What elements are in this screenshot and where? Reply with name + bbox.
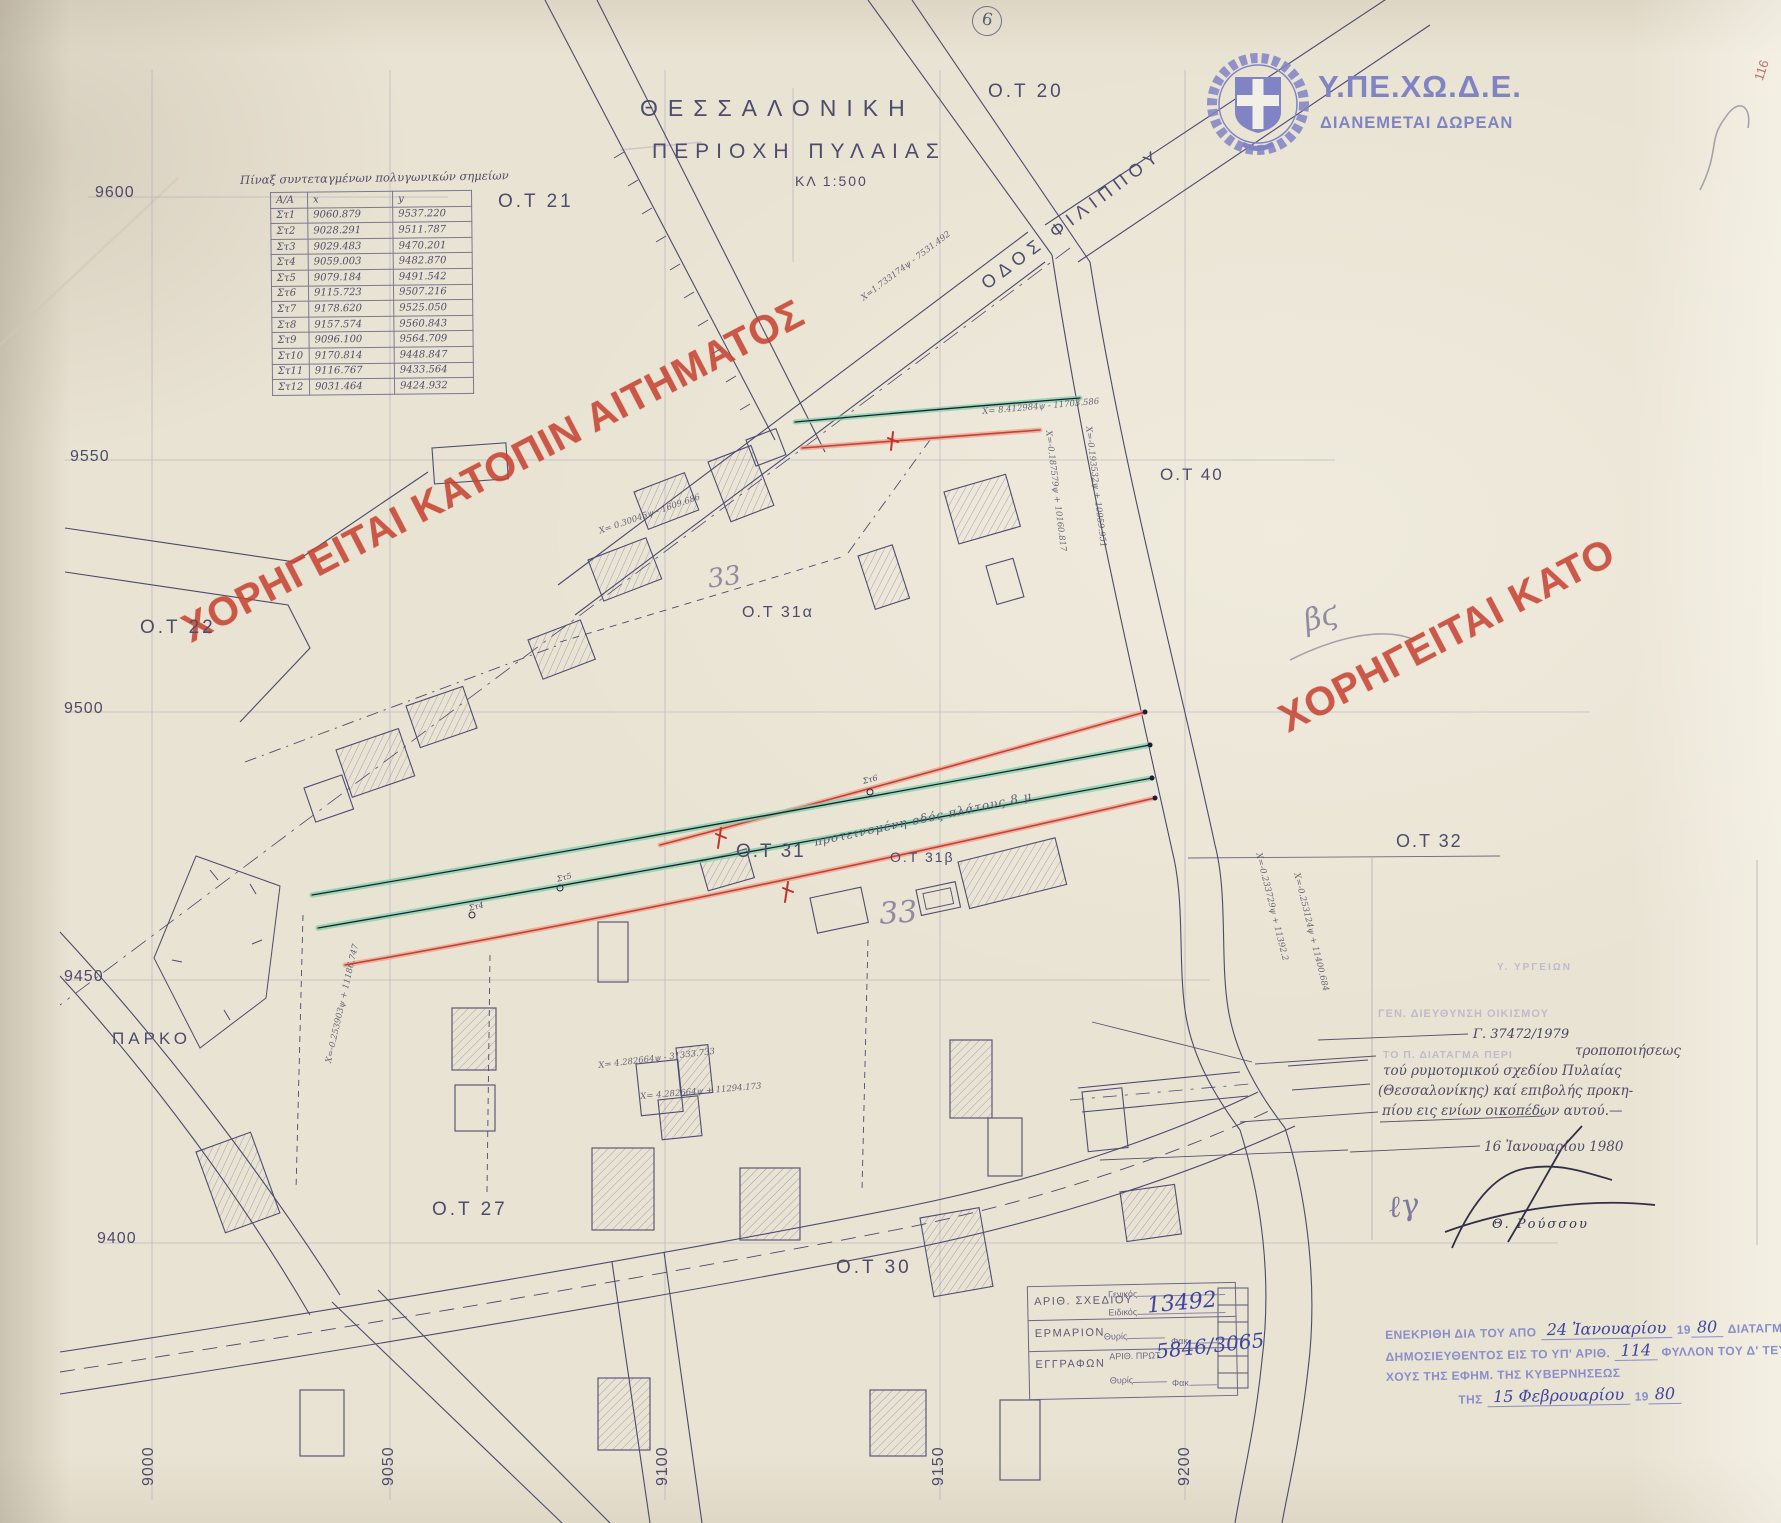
block-label-ot31b: Ο.Τ 31β (890, 850, 955, 865)
grid-label-9200: 9200 (1176, 1446, 1194, 1486)
grid-label-9150: 9150 (930, 1446, 948, 1486)
grid-label-9000: 9000 (140, 1446, 158, 1486)
map-title-area: ΠΕΡΙΟΧΗ ΠΥΛΑΙΑΣ (652, 140, 946, 163)
block-label-ot22: Ο.Τ 22 (140, 618, 216, 639)
grid-label-9100: 9100 (654, 1446, 672, 1486)
pencil-mark-signature-area: ℓγ (1386, 1188, 1421, 1225)
map-linework (0, 0, 1781, 1523)
agency-distribution: ΔΙΑΝΕΜΕΤΑΙ ΔΩΡΕΑΝ (1320, 114, 1513, 132)
reference-number: Γ. 37472/1979 (1473, 1028, 1569, 1042)
approval-stamp: ΕΝΕΚΡΙΘΗ ΔΙΑ ΤΟΥ ΑΠΟ 24 Ἰανουαρίου 1980 … (1385, 1316, 1781, 1411)
map-title-city: ΘΕΣΣΑΛΟΝΙΚΗ (640, 96, 915, 121)
grid-label-9500: 9500 (64, 700, 104, 718)
documents-label: ΕΓΓΡΑΦΩΝ (1035, 1358, 1105, 1371)
grid-label-9400: 9400 (97, 1230, 137, 1248)
documents-folder-field: Φακ. (1172, 1375, 1218, 1388)
documents-slot-field: Θυρίς (1110, 1372, 1168, 1385)
col-header-y: y (392, 190, 471, 206)
block-label-ot40: Ο.Τ 40 (1160, 466, 1224, 485)
faint-stamp-line: ΓΕΝ. ΔΙΕΥΘΥΝΣΗ ΟΙΚΙΣΜΟΥ (1378, 1008, 1549, 1020)
protocol-number-label: ΑΡΙΘ. ΠΡΩΤ. (1109, 1350, 1162, 1361)
col-header-x: x (308, 191, 393, 207)
grid-label-9600: 9600 (95, 184, 135, 202)
pencil-mark-33a: 33 (706, 561, 743, 594)
park-boundary (154, 856, 280, 1048)
block-label-ot32: Ο.Τ 32 (1396, 832, 1463, 852)
grid-label-9050: 9050 (380, 1446, 398, 1486)
map-scale: ΚΛ 1:500 (795, 174, 868, 189)
coordinate-table: Α/Α x y Στ19060.8799537.220 Στ29028.2919… (270, 190, 474, 396)
decree-note-line: τροποποιήσεως (1575, 1044, 1681, 1059)
decree-note-line: (Θεσσαλονίκης) καί επιβολής προκη- (1378, 1084, 1633, 1099)
coat-of-arms-icon (1212, 58, 1304, 150)
block-label-ot20: Ο.Τ 20 (988, 82, 1064, 103)
scanned-map-page: ΘΕΣΣΑΛΟΝΙΚΗ ΠΕΡΙΟΧΗ ΠΥΛΑΙΑΣ ΚΛ 1:500 Υ.Π… (0, 0, 1781, 1523)
block-label-ot21: Ο.Τ 21 (498, 192, 574, 213)
archive-stamp-box: ΑΡΙΘ. ΣΧΕΔΙΟΥ Γενικός Ειδικός 13492 ΕΡΜΑ… (1027, 1282, 1238, 1400)
park-label: ΠΑΡΚΟ (112, 1030, 191, 1049)
block-label-ot31a: Ο.Τ 31α (742, 604, 814, 622)
agency-name: Υ.ΠΕ.ΧΩ.Δ.Ε. (1318, 70, 1522, 104)
grid-label-9450: 9450 (64, 968, 104, 986)
block-label-ot30: Ο.Τ 30 (836, 1258, 912, 1279)
table-row: Στ129031.4649424.932 (272, 378, 473, 396)
col-header-aa: Α/Α (271, 192, 308, 208)
pencil-mark-33b: 33 (878, 895, 918, 931)
faint-stamp-line: ΤΟ Π. ΔΙΑΤΑΓΜΑ ΠΕΡΙ (1383, 1050, 1513, 1062)
signer-name: Θ. Ρούσσου (1492, 1218, 1589, 1232)
block-label-ot31: Ο.Τ 31 (736, 842, 806, 863)
decree-note-line: τού ρυμοτομικού σχεδίου Πυλαίας (1383, 1064, 1622, 1079)
faint-stamp-line: Υ. ΥΡΓΕΙΩΝ (1497, 962, 1572, 973)
grid-label-9550: 9550 (70, 448, 110, 466)
block-label-ot27: Ο.Τ 27 (432, 1200, 508, 1221)
cabinet-label: ΕΡΜΑΡΙΟΝ (1035, 1327, 1105, 1340)
signature-date: 16 Ἰανουαρίου 1980 (1484, 1140, 1624, 1155)
decree-note-line: πίου εις ενίων οικοπέδων αυτού.— (1382, 1104, 1623, 1119)
